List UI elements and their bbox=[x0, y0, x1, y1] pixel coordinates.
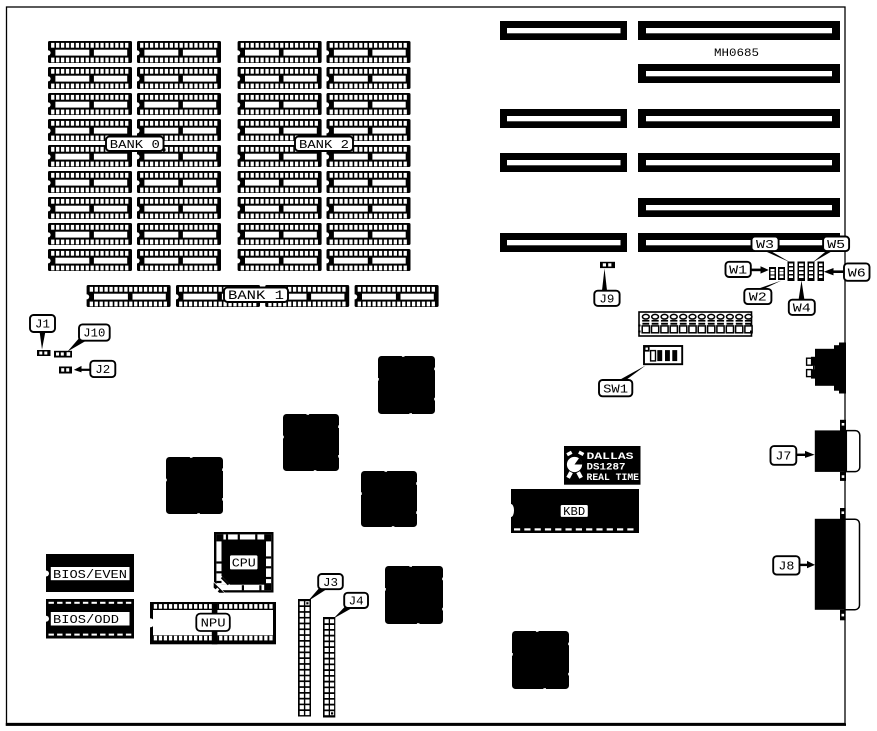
svg-text:W5: W5 bbox=[827, 238, 845, 252]
svg-text:SW1: SW1 bbox=[603, 382, 628, 396]
svg-text:W6: W6 bbox=[848, 266, 866, 280]
svg-text:W2: W2 bbox=[749, 291, 767, 305]
svg-text:CPU: CPU bbox=[232, 557, 256, 571]
svg-text:W1: W1 bbox=[729, 264, 747, 278]
svg-text:J7: J7 bbox=[775, 450, 791, 464]
svg-text:BANK 1: BANK 1 bbox=[228, 288, 284, 303]
svg-text:W4: W4 bbox=[793, 302, 811, 316]
svg-text:MH0685: MH0685 bbox=[714, 48, 759, 60]
svg-text:J3: J3 bbox=[323, 576, 338, 590]
svg-text:KBD: KBD bbox=[563, 505, 585, 519]
svg-text:BANK 2: BANK 2 bbox=[299, 138, 349, 152]
svg-text:BIOS/EVEN: BIOS/EVEN bbox=[53, 568, 127, 582]
svg-text:J8: J8 bbox=[778, 560, 794, 574]
svg-text:J2: J2 bbox=[95, 363, 110, 377]
svg-text:J1: J1 bbox=[35, 318, 50, 332]
svg-text:J9: J9 bbox=[599, 293, 614, 307]
svg-text:J10: J10 bbox=[83, 327, 105, 341]
svg-text:J4: J4 bbox=[349, 595, 364, 609]
svg-text:REAL TIME: REAL TIME bbox=[587, 472, 640, 484]
svg-text:W3: W3 bbox=[756, 238, 774, 252]
svg-text:BIOS/ODD: BIOS/ODD bbox=[53, 613, 119, 627]
svg-text:BANK 0: BANK 0 bbox=[110, 138, 160, 152]
svg-text:NPU: NPU bbox=[201, 617, 226, 631]
